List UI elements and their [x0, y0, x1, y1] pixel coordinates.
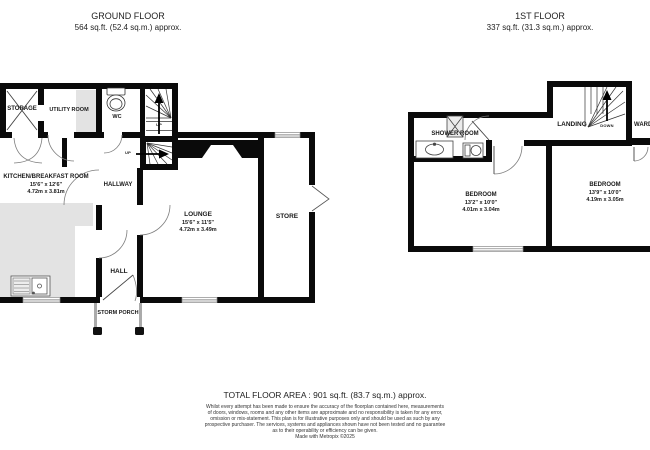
stairs-down-label: DOWN — [600, 123, 613, 128]
room-label-landing: LANDING — [557, 121, 587, 128]
room-label-kitchen: KITCHEN/BREAKFAST ROOM — [3, 174, 88, 180]
room-dims-bedroom2-metric: 4.19m x 3.05m — [586, 197, 623, 203]
room-label-wc: WC — [112, 114, 121, 120]
total-floor-area: TOTAL FLOOR AREA : 901 sq.ft. (83.7 sq.m… — [224, 390, 427, 400]
ground-floor-title: GROUND FLOOR — [91, 11, 165, 21]
first-floor-window — [473, 247, 523, 252]
ground-floor-area: 564 sq.ft. (52.4 sq.m.) approx. — [75, 23, 182, 32]
stairs-up-label-1: UP — [156, 122, 162, 127]
room-label-storage: STORAGE — [7, 106, 37, 112]
floorplan-page: GROUND FLOOR 564 sq.ft. (52.4 sq.m.) app… — [0, 0, 650, 450]
sink-icon — [11, 276, 50, 296]
floorplan-drawing — [0, 0, 650, 450]
room-label-store: STORE — [276, 213, 298, 220]
room-dims-bedroom1-metric: 4.01m x 3.04m — [462, 207, 499, 213]
room-label-bedroom2: BEDROOM — [589, 182, 620, 188]
first-floor-plan — [408, 81, 650, 252]
metropix-credit: Made with Metropix ©2025 — [295, 434, 355, 440]
room-label-wardrobe: WARDROBE — [634, 122, 650, 128]
first-floor-stairs — [585, 87, 625, 127]
room-dims-lounge-metric: 4.72m x 3.49m — [179, 227, 216, 233]
room-label-utility: UTILITY ROOM — [49, 107, 88, 113]
storm-porch-structure — [93, 303, 144, 335]
room-label-storm-porch: STORM PORCH — [97, 310, 138, 316]
room-label-bedroom1: BEDROOM — [465, 192, 496, 198]
room-label-lounge: LOUNGE — [184, 211, 212, 218]
room-label-hallway: HALLWAY — [104, 182, 133, 188]
basin-icon — [416, 141, 453, 158]
room-label-hall: HALL — [110, 268, 127, 275]
toilet-icon-first-floor — [463, 143, 483, 158]
first-floor-area: 337 sq.ft. (31.3 sq.m.) approx. — [487, 23, 594, 32]
room-label-shower-room: SHOWER ROOM — [431, 131, 478, 137]
room-dims-lounge-imperial: 15'6" x 11'5" — [182, 220, 214, 226]
stairs-up-label-2: UP — [125, 150, 131, 155]
first-floor-walls — [408, 81, 650, 252]
first-floor-title: 1ST FLOOR — [515, 11, 565, 21]
room-dims-kitchen-metric: 4.72m x 3.81m — [27, 189, 64, 195]
room-dims-kitchen-imperial: 15'6" x 12'6" — [30, 182, 62, 188]
store-door — [312, 186, 329, 211]
room-dims-bedroom1-imperial: 13'2" x 10'0" — [465, 200, 497, 206]
toilet-icon — [107, 88, 125, 111]
room-dims-bedroom2-imperial: 13'9" x 10'0" — [589, 190, 621, 196]
ground-floor-plan — [0, 83, 329, 335]
